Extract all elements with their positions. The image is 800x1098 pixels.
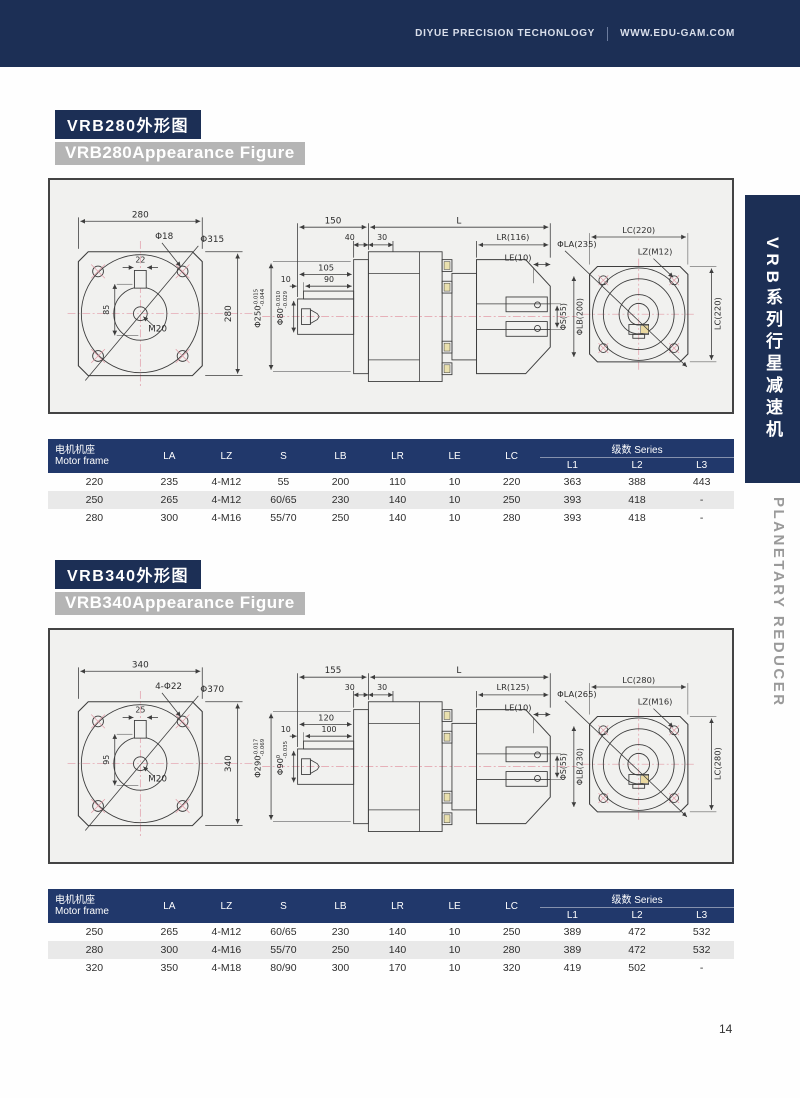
col-l1: L1 (540, 458, 605, 474)
table-cell: - (669, 509, 734, 527)
dim-side-key-length: 90 (324, 275, 334, 284)
table-cell: 389 (540, 923, 605, 941)
table-row: 2803004-M1655/7025014010280389472532 (48, 941, 734, 959)
sidebar-series-cn: VRB系列行星减速机 (760, 237, 785, 442)
table-cell: 250 (312, 509, 369, 527)
table-cell: 250 (483, 491, 540, 509)
dim-front-key-height: 85 (102, 305, 111, 315)
table-cell: 10 (426, 923, 483, 941)
dim-rear-lz: LZ(M12) (638, 247, 673, 257)
table-cell: 220 (48, 473, 141, 491)
table-cell: 80/90 (255, 959, 312, 977)
dim-side-lb: ΦLB(230) (576, 748, 585, 785)
table-cell: 230 (312, 923, 369, 941)
tolerance-lower: -0.069 (260, 738, 266, 756)
table-cell: 230 (312, 491, 369, 509)
dim-side-d1: 30 (345, 683, 355, 692)
dim-side-key-offset: 10 (281, 275, 291, 284)
table-cell: 532 (669, 941, 734, 959)
section-title-en: VRB280Appearance Figure (55, 142, 305, 165)
dim-front-thread: M20 (148, 324, 167, 334)
dim-side-hub: 120 (318, 712, 334, 722)
dim-front-hole: 4-Φ22 (155, 682, 182, 692)
table-cell: 235 (141, 473, 198, 491)
table-cell: 140 (369, 491, 426, 509)
dim-front-circle: Φ315 (200, 235, 224, 245)
table-cell: 110 (369, 473, 426, 491)
col-lz: LZ (198, 439, 255, 473)
table-cell: 200 (312, 473, 369, 491)
dim-tolerance: Φ290 (252, 755, 262, 777)
table-cell: - (669, 491, 734, 509)
table-cell: 170 (369, 959, 426, 977)
col-s: S (255, 889, 312, 923)
table-cell: 418 (605, 509, 670, 527)
table-cell: - (669, 959, 734, 977)
table-cell: 443 (669, 473, 734, 491)
table-cell: 472 (605, 941, 670, 959)
table-cell: 419 (540, 959, 605, 977)
dim-rear-la: ΦLA(235) (557, 239, 597, 249)
section-vrb280: VRB280外形图 VRB280Appearance Figure 280280… (48, 110, 734, 527)
dim-rear-la: ΦLA(265) (557, 689, 597, 699)
dim-front-key-width: 22 (135, 256, 145, 265)
table-cell: 60/65 (255, 923, 312, 941)
table-cell: 300 (141, 941, 198, 959)
table-row: 2803004-M1655/7025014010280393418- (48, 509, 734, 527)
dim-side-d1: 40 (345, 233, 355, 242)
table-cell: 389 (540, 941, 605, 959)
col-l3: L3 (669, 908, 734, 924)
col-lr: LR (369, 439, 426, 473)
table-cell: 300 (312, 959, 369, 977)
table-cell: 280 (483, 509, 540, 527)
dim-side-d2: 30 (377, 683, 387, 692)
section-title-cn: VRB340外形图 (55, 560, 201, 589)
table-cell: 250 (48, 923, 141, 941)
sidebar-series-tab: VRB系列行星减速机 (745, 195, 800, 483)
col-l3: L3 (669, 458, 734, 474)
col-le: LE (426, 889, 483, 923)
tolerance-lower: -0.044 (260, 288, 266, 306)
website-link[interactable]: WWW.EDU-GAM.COM (620, 28, 735, 39)
dim-side-key-length: 100 (322, 725, 337, 734)
dim-side-total-length: L (456, 666, 461, 676)
dim-rear-lc-top: LC(220) (622, 225, 655, 235)
table-cell: 320 (48, 959, 141, 977)
tolerance-upper: -0.017 (253, 739, 259, 756)
dim-side-s: ΦS(55) (559, 303, 568, 330)
section-vrb340: VRB340外形图 VRB340Appearance Figure 340340… (48, 560, 734, 977)
section-title-en: VRB340Appearance Figure (55, 592, 305, 615)
dim-side-lr: LR(116) (496, 232, 529, 242)
page-number: 14 (719, 1022, 732, 1036)
sidebar-series-en: PLANETARY REDUCER (770, 497, 787, 708)
tolerance-lower: -0.035 (283, 741, 289, 758)
col-lb: LB (312, 439, 369, 473)
col-motor-frame: 电机机座Motor frame (48, 889, 141, 923)
dim-side-left-length: 150 (325, 216, 342, 226)
dim-front-key-height: 95 (102, 755, 111, 765)
col-la: LA (141, 889, 198, 923)
table-cell: 55/70 (255, 509, 312, 527)
table-row: 2502654-M1260/6523014010250393418- (48, 491, 734, 509)
dim-tolerance: Φ90 (275, 758, 285, 775)
table-cell: 280 (48, 509, 141, 527)
technical-drawing-vrb280: 280280Φ18Φ3152285M20150L4030LR(116)LE(10… (48, 178, 734, 414)
col-lc: LC (483, 889, 540, 923)
dim-side-left-length: 155 (325, 666, 342, 676)
table-cell: 280 (483, 941, 540, 959)
table-cell: 532 (669, 923, 734, 941)
dim-side-hub: 105 (318, 262, 334, 272)
col-l2: L2 (605, 458, 670, 474)
dim-side-lr: LR(125) (496, 682, 529, 692)
table-cell: 250 (312, 941, 369, 959)
table-cell: 55/70 (255, 941, 312, 959)
table-cell: 60/65 (255, 491, 312, 509)
table-cell: 10 (426, 473, 483, 491)
table-cell: 320 (483, 959, 540, 977)
col-motor-frame: 电机机座Motor frame (48, 439, 141, 473)
dim-front-height: 340 (224, 755, 234, 772)
table-cell: 55 (255, 473, 312, 491)
col-lb: LB (312, 889, 369, 923)
table-cell: 250 (483, 923, 540, 941)
dim-front-key-width: 25 (135, 706, 145, 715)
table-cell: 300 (141, 509, 198, 527)
table-cell: 10 (426, 959, 483, 977)
dim-front-height: 280 (224, 305, 234, 322)
table-cell: 140 (369, 509, 426, 527)
tolerance-upper: -0.015 (253, 289, 259, 306)
drawing-svg: 280280Φ18Φ3152285M20150L4030LR(116)LE(10… (50, 180, 732, 412)
table-row: 2202354-M125520011010220363388443 (48, 473, 734, 491)
table-cell: 418 (605, 491, 670, 509)
col-series: 级数 Series (540, 439, 734, 458)
top-header-bar: DIYUE PRECISION TECHONLOGY WWW.EDU-GAM.C… (0, 0, 800, 67)
table-row: 2502654-M1260/6523014010250389472532 (48, 923, 734, 941)
dim-tolerance: Φ80 (275, 308, 285, 325)
table-cell: 265 (141, 923, 198, 941)
col-lr: LR (369, 889, 426, 923)
dim-side-le: LE(10) (505, 703, 532, 713)
col-l1: L1 (540, 908, 605, 924)
table-cell: 10 (426, 491, 483, 509)
tolerance-upper: -0.010 (276, 290, 282, 308)
dim-front-hole: Φ18 (155, 232, 174, 242)
dim-front-width: 280 (132, 210, 149, 220)
col-s: S (255, 439, 312, 473)
tolerance-lower: -0.029 (283, 290, 289, 308)
dim-front-width: 340 (132, 660, 149, 670)
dim-rear-lz: LZ(M16) (638, 697, 673, 707)
table-cell: 4-M16 (198, 509, 255, 527)
table-cell: 4-M12 (198, 491, 255, 509)
col-lc: LC (483, 439, 540, 473)
table-cell: 4-M12 (198, 923, 255, 941)
dimension-table-vrb280: 电机机座Motor frame LA LZ S LB LR LE LC 级数 S… (48, 439, 734, 527)
table-cell: 250 (48, 491, 141, 509)
table-cell: 280 (48, 941, 141, 959)
col-le: LE (426, 439, 483, 473)
section-title-cn: VRB280外形图 (55, 110, 201, 139)
table-cell: 350 (141, 959, 198, 977)
table-cell: 4-M12 (198, 473, 255, 491)
dim-rear-lc-top: LC(280) (622, 675, 655, 685)
header-divider (607, 27, 608, 41)
dim-side-lb: ΦLB(200) (576, 298, 585, 335)
col-lz: LZ (198, 889, 255, 923)
table-cell: 220 (483, 473, 540, 491)
dimension-table-vrb340: 电机机座Motor frame LA LZ S LB LR LE LC 级数 S… (48, 889, 734, 977)
dim-side-d2: 30 (377, 233, 387, 242)
table-cell: 363 (540, 473, 605, 491)
tolerance-upper: 0 (276, 754, 282, 758)
table-cell: 265 (141, 491, 198, 509)
dim-side-total-length: L (456, 216, 461, 226)
table-cell: 10 (426, 941, 483, 959)
col-l2: L2 (605, 908, 670, 924)
table-cell: 393 (540, 509, 605, 527)
dim-side-key-offset: 10 (281, 725, 291, 734)
dim-front-circle: Φ370 (200, 685, 224, 695)
dim-front-thread: M20 (148, 774, 167, 784)
table-cell: 140 (369, 923, 426, 941)
table-cell: 10 (426, 509, 483, 527)
dim-side-le: LE(10) (505, 253, 532, 263)
col-series: 级数 Series (540, 889, 734, 908)
table-cell: 140 (369, 941, 426, 959)
drawing-svg: 3403404-Φ22Φ3702595M20155L3030LR(125)LE(… (50, 630, 732, 862)
table-row: 3203504-M1880/9030017010320419502- (48, 959, 734, 977)
company-name: DIYUE PRECISION TECHONLOGY (415, 28, 595, 39)
dim-tolerance: Φ250 (252, 305, 262, 328)
table-cell: 4-M16 (198, 941, 255, 959)
table-cell: 472 (605, 923, 670, 941)
dim-side-s: ΦS(55) (559, 753, 568, 780)
col-la: LA (141, 439, 198, 473)
table-cell: 4-M18 (198, 959, 255, 977)
table-cell: 502 (605, 959, 670, 977)
table-cell: 393 (540, 491, 605, 509)
table-cell: 388 (605, 473, 670, 491)
dim-rear-lc-right: LC(220) (712, 297, 722, 330)
dim-rear-lc-right: LC(280) (712, 747, 722, 780)
technical-drawing-vrb340: 3403404-Φ22Φ3702595M20155L3030LR(125)LE(… (48, 628, 734, 864)
